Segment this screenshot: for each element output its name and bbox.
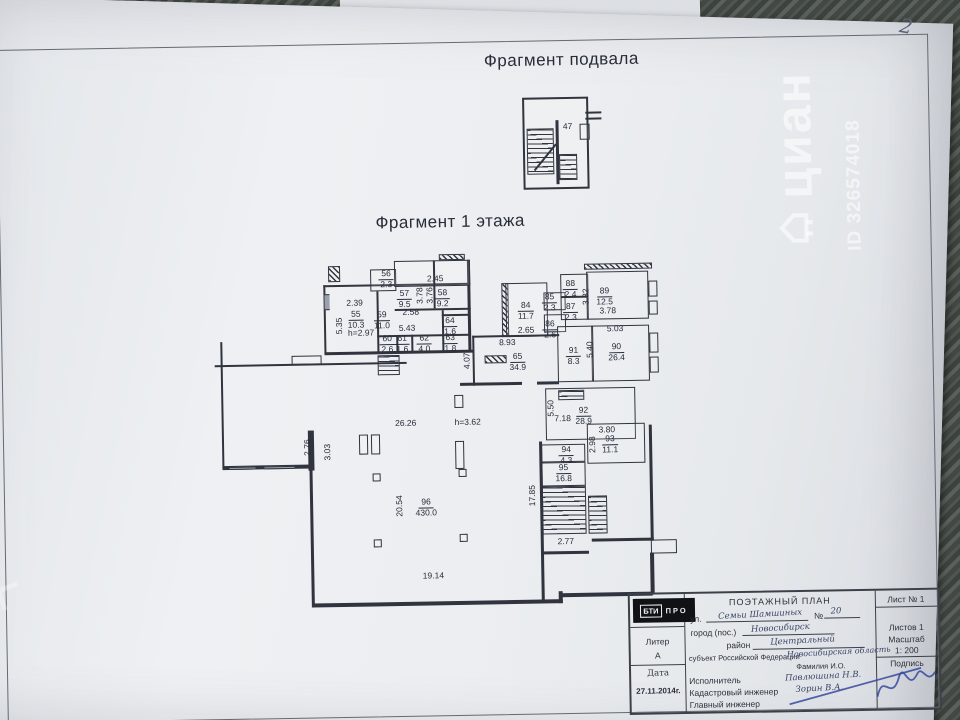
wall-tick: [585, 111, 601, 113]
room-area: 9.2: [435, 299, 451, 309]
title-block: БТИ ПРО ПОЭТАЖНЫЙ ПЛАН ул. Семьи Шамшины…: [628, 588, 942, 715]
room-62-label: 624.0: [416, 333, 432, 353]
dimension-label: 2.65: [518, 325, 535, 335]
wall: [592, 538, 654, 542]
room-area: 16.8: [555, 473, 572, 483]
wall: [328, 266, 340, 282]
room-area: 2.6: [542, 330, 558, 340]
room-area: 26.4: [608, 353, 625, 363]
district-label: район: [727, 640, 751, 650]
wall: [359, 435, 368, 455]
cian-watermark-text: циан: [764, 71, 824, 199]
first-floor-fragment-title: Фрагмент 1 этажа: [340, 210, 560, 234]
logo-pro-text: ПРО: [665, 605, 687, 614]
bti-pro-logo: БТИ ПРО: [633, 598, 695, 623]
room-63-label: 631.8: [442, 333, 458, 353]
signature: [781, 660, 940, 709]
wall: [309, 468, 314, 608]
stairs: [559, 154, 577, 180]
paper-sheet: Фрагмент подвала Фрагмент 1 этажа 47 562…: [0, 0, 953, 720]
wall: [649, 425, 654, 541]
room-area: 11.1: [602, 445, 618, 455]
room-60-label: 602.6: [379, 334, 395, 354]
wall: [374, 539, 382, 547]
cell-divider: [630, 626, 684, 628]
date-value: 27.11.2014г.: [636, 686, 681, 696]
room-56-label: 562.3: [378, 269, 394, 289]
room-47-label: 47: [560, 122, 576, 132]
dimension-label: 17.85: [527, 485, 537, 506]
wall: [373, 473, 381, 481]
cian-id-watermark: ID 326574018: [836, 75, 874, 296]
cadastral-engineer-label: Кадастровый инженер: [689, 686, 778, 698]
wall: [650, 356, 659, 372]
dimension-label: 8.93: [499, 337, 516, 347]
room-91-label: 918.3: [566, 346, 582, 366]
dimension-label: 3.78: [599, 305, 616, 315]
room-93-label: 9311.1: [602, 434, 618, 454]
stairs: [558, 390, 584, 400]
document-type: ПОЭТАЖНЫЙ ПЛАН: [729, 595, 831, 607]
shaft: [580, 124, 590, 140]
room-area: 11.0: [374, 321, 390, 331]
room-90-label: 9026.4: [608, 342, 625, 362]
dimension-label: 2.58: [402, 307, 419, 317]
dimension-label: 19.14: [423, 570, 444, 580]
wall: [220, 342, 224, 469]
dimension-label: h=3.62: [454, 417, 480, 427]
cell-divider: [631, 664, 685, 666]
wall: [472, 336, 475, 386]
dimension-label: 26.26: [395, 418, 416, 428]
executor-label: Исполнитель: [689, 675, 741, 686]
wall: [459, 469, 467, 477]
dimension-label: 20.54: [394, 495, 404, 516]
window: [229, 466, 255, 469]
dimension-label: 2.77: [557, 536, 574, 546]
room-86-label: 862.6: [542, 319, 558, 339]
wall: [648, 280, 657, 296]
city-value: Новосибирск: [751, 622, 810, 635]
district-value: Центральный: [770, 634, 835, 647]
wall: [584, 263, 652, 270]
window: [324, 294, 329, 310]
room-89-label: 8912.5: [596, 286, 613, 306]
stairs: [588, 495, 608, 533]
dimension-label: 2.76: [302, 439, 312, 456]
room-65-label: 6534.9: [509, 352, 526, 372]
number-label: №: [814, 611, 823, 621]
dimension-label: 3.78: [414, 287, 424, 304]
dimension-label: 4.07: [461, 352, 471, 369]
wall-tick: [585, 117, 601, 119]
room-area: 28.9: [575, 416, 592, 426]
room-84-label: 8411.7: [518, 301, 534, 321]
room-area: 2.4: [563, 289, 579, 299]
stairs: [542, 486, 587, 535]
room-area: 2.6: [380, 345, 396, 355]
date-label: Дата: [647, 668, 669, 678]
dimension-label: 5.40: [584, 341, 594, 358]
wall: [460, 382, 522, 386]
room-area: 2.3: [542, 303, 558, 313]
room-area: 2.3: [378, 280, 394, 290]
sheets-total: Листов 1: [889, 622, 924, 633]
room-87-label: 872.3: [563, 302, 579, 322]
first-floor-plan: 562.3579.5589.25510.35911.0641.6602.6611…: [193, 242, 669, 615]
underline: [824, 617, 860, 619]
room-92-label: 9228.9: [575, 406, 592, 426]
number-value: 20: [830, 606, 841, 617]
drawing-content: Фрагмент подвала Фрагмент 1 этажа 47 562…: [0, 2, 949, 720]
dimension-label: 2.39: [346, 298, 363, 308]
wall: [292, 355, 322, 365]
dimension-label: 2.98: [587, 436, 597, 453]
window: [264, 465, 294, 469]
dimension-label: 7.18: [554, 413, 571, 423]
room-95-label: 9516.8: [555, 463, 572, 483]
wall: [439, 254, 465, 260]
basement-fragment-title: Фрагмент подвала: [451, 48, 671, 72]
wall: [649, 332, 658, 352]
city-label: город (пос.): [690, 627, 736, 638]
room-85-label: 852.3: [542, 292, 558, 312]
room-61-label: 611.6: [394, 334, 410, 354]
room-area: 1.6: [395, 344, 411, 354]
logo-bti-text: БТИ: [640, 604, 661, 617]
wall: [411, 335, 413, 353]
wall: [455, 441, 464, 469]
cian-house-icon: [776, 208, 815, 247]
cell-divider: [875, 606, 938, 608]
chief-engineer-label: Главный инженер: [690, 699, 760, 710]
room-area: 430.0: [416, 508, 437, 518]
wall: [485, 355, 507, 363]
sheet-number: Лист № 1: [887, 594, 924, 605]
room-59-label: 5911.0: [374, 310, 390, 330]
room-58-label: 589.2: [435, 288, 451, 308]
room-area: 11.7: [518, 311, 534, 321]
wall: [651, 539, 677, 553]
room-area: 8.3: [566, 356, 582, 366]
dimension-label: 3.80: [598, 424, 615, 434]
liter-value: А: [655, 650, 661, 660]
photo-of-floor-plan: { "page": { "corner_number": "2" }, "wat…: [0, 0, 960, 720]
street-label: ул.: [690, 614, 702, 624]
dimension-label: 3.32: [580, 288, 590, 305]
dimension-label: 5.35: [334, 318, 344, 335]
dimension-label: 5.03: [607, 323, 624, 333]
dimension-label: 3.76: [424, 287, 434, 304]
dimension-label: h=2.97: [348, 327, 374, 337]
wall: [649, 300, 658, 314]
room-96-label: 96430.0: [415, 497, 437, 517]
wall: [313, 599, 563, 607]
stairs: [378, 355, 400, 375]
room-area: 4.0: [417, 344, 433, 354]
scale-value: 1: 200: [895, 645, 919, 655]
room-area: 2.3: [563, 312, 579, 322]
scale-label: Масштаб: [888, 634, 925, 645]
room-area: 34.9: [509, 362, 526, 372]
liter-label: Литер: [646, 636, 670, 646]
dimension-label: 2.45: [427, 273, 444, 283]
wall: [460, 534, 468, 542]
wall: [650, 553, 655, 595]
basement-stair-plan: 47: [515, 91, 612, 203]
room-area: 1.8: [443, 343, 459, 353]
wall: [537, 381, 559, 384]
wall: [541, 551, 589, 555]
wall: [371, 434, 380, 454]
dimension-label: 3.03: [322, 444, 332, 461]
wall: [454, 395, 463, 408]
cian-watermark: циан: [757, 28, 832, 289]
dimension-label: 5.43: [399, 323, 416, 333]
room-88-label: 882.4: [562, 279, 578, 299]
